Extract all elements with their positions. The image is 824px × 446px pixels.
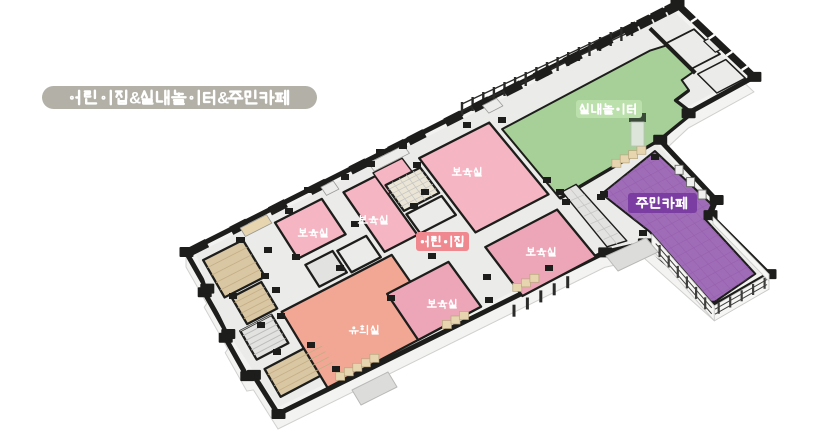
svg-text:&: & [129,89,141,108]
svg-text:&: & [217,89,229,108]
